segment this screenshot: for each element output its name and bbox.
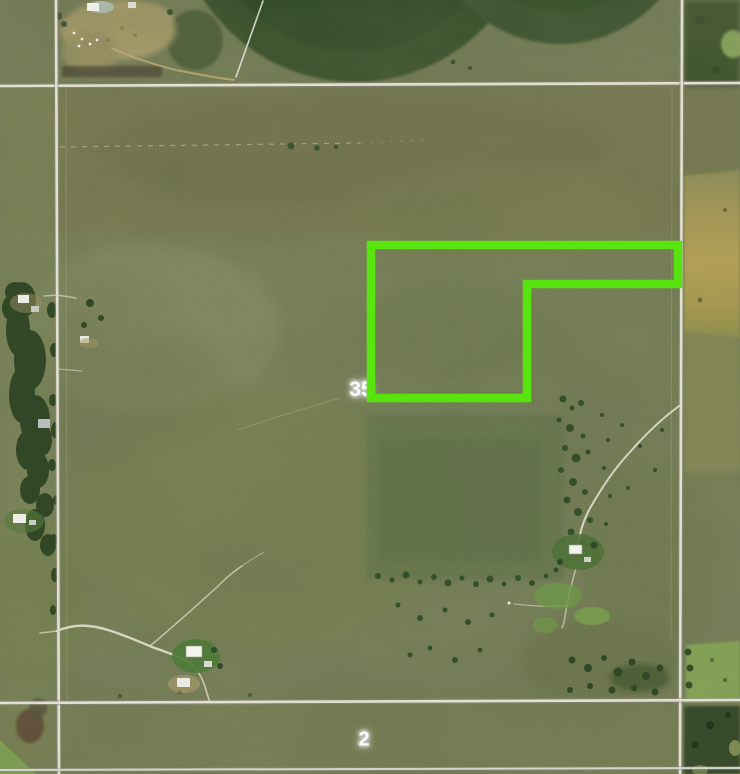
- corner-woods-and-field: [684, 641, 740, 774]
- tan-stubble-field: [684, 170, 740, 472]
- map-viewport[interactable]: 35 2: [0, 0, 740, 774]
- section-label-2: 2: [358, 729, 369, 752]
